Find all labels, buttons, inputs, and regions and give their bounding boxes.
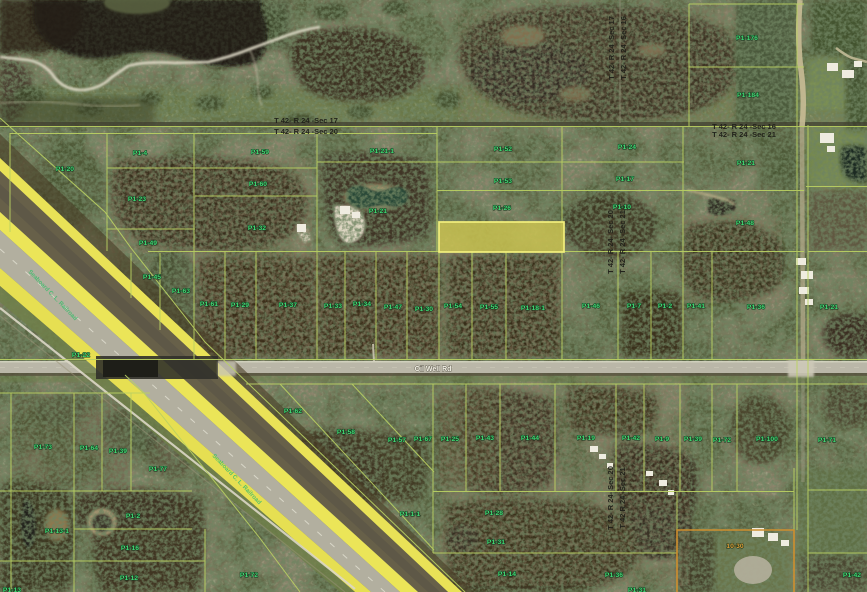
svg-text:P1-33: P1-33 (324, 303, 342, 310)
svg-text:P1-48: P1-48 (736, 220, 754, 227)
svg-text:P1-42: P1-42 (622, 435, 640, 442)
svg-text:P1-7: P1-7 (627, 303, 642, 310)
svg-text:P1-176: P1-176 (736, 35, 758, 42)
svg-text:P1-30: P1-30 (415, 306, 433, 313)
svg-text:T 42- R 24 -Sec 21: T 42- R 24 -Sec 21 (712, 130, 776, 139)
svg-text:P1-58: P1-58 (337, 429, 355, 436)
svg-text:Oil Well Rd: Oil Well Rd (415, 366, 452, 373)
svg-text:P1-44: P1-44 (521, 435, 539, 442)
svg-text:T 42- R 24 -Sec 17: T 42- R 24 -Sec 17 (274, 116, 338, 125)
svg-text:P1-29: P1-29 (231, 302, 249, 309)
svg-text:P1-2: P1-2 (126, 513, 141, 520)
svg-text:P1-24: P1-24 (618, 144, 636, 151)
svg-text:P1-72: P1-72 (713, 437, 731, 444)
svg-text:P1-10: P1-10 (613, 204, 631, 211)
svg-text:P1-18-1: P1-18-1 (521, 305, 545, 312)
svg-text:P1-45: P1-45 (143, 274, 161, 281)
svg-text:P1-63: P1-63 (172, 288, 190, 295)
svg-text:P1-21-1: P1-21-1 (370, 148, 394, 155)
svg-text:P1-43: P1-43 (476, 435, 494, 442)
svg-text:P1-28: P1-28 (485, 510, 503, 517)
svg-text:P1-26: P1-26 (493, 205, 511, 212)
svg-text:P1-21: P1-21 (369, 208, 387, 215)
svg-text:P1-21: P1-21 (737, 160, 755, 167)
svg-text:T 42- R 24- Sec 20: T 42- R 24- Sec 20 (606, 210, 615, 274)
svg-text:P1-57: P1-57 (388, 437, 406, 444)
svg-text:P1-19: P1-19 (577, 435, 595, 442)
svg-text:P1-36: P1-36 (747, 304, 765, 311)
svg-text:P1-14: P1-14 (498, 571, 516, 578)
svg-text:P1-23: P1-23 (128, 196, 146, 203)
svg-text:P1-21: P1-21 (820, 304, 838, 311)
svg-text:P1-39: P1-39 (109, 448, 127, 455)
svg-text:P1-37: P1-37 (279, 302, 297, 309)
svg-text:P1-22: P1-22 (72, 352, 90, 359)
svg-text:P1-67: P1-67 (414, 436, 432, 443)
svg-text:P1-20: P1-20 (56, 166, 74, 173)
svg-text:P1-25: P1-25 (441, 436, 459, 443)
svg-text:P1-54: P1-54 (444, 303, 462, 310)
svg-text:P1-31: P1-31 (628, 587, 646, 592)
svg-text:P1-16: P1-16 (121, 545, 139, 552)
svg-text:T 42 R 24 -Sec 21: T 42 R 24 -Sec 21 (618, 467, 627, 528)
svg-text:P1-72: P1-72 (240, 572, 258, 579)
svg-text:P1-47: P1-47 (384, 304, 402, 311)
svg-text:P1-17: P1-17 (616, 176, 634, 183)
svg-text:P1-13: P1-13 (3, 587, 21, 592)
svg-text:P1-71: P1-71 (818, 437, 836, 444)
svg-text:P1-36: P1-36 (605, 572, 623, 579)
svg-text:P1-34: P1-34 (353, 301, 371, 308)
svg-text:P1-32: P1-32 (248, 225, 266, 232)
svg-text:T 42- R 24 -Sec 17: T 42- R 24 -Sec 17 (607, 16, 616, 80)
svg-text:P1-53: P1-53 (494, 178, 512, 185)
svg-text:P1-55: P1-55 (480, 304, 498, 311)
svg-text:P1-73: P1-73 (34, 444, 52, 451)
svg-text:10-30: 10-30 (726, 543, 744, 550)
svg-text:P1-31: P1-31 (487, 539, 505, 546)
svg-text:P1-59: P1-59 (251, 149, 269, 156)
svg-text:T 42- R 24 -Sec 20: T 42- R 24 -Sec 20 (274, 127, 338, 136)
svg-text:P1-12: P1-12 (120, 575, 138, 582)
svg-text:P1-62: P1-62 (284, 408, 302, 415)
svg-text:P1-4: P1-4 (133, 150, 148, 157)
svg-text:P1-60: P1-60 (249, 181, 267, 188)
svg-text:P1-41: P1-41 (687, 303, 705, 310)
svg-text:P1-77: P1-77 (149, 466, 167, 473)
svg-text:T 42- R 24 -Sec 16: T 42- R 24 -Sec 16 (619, 16, 628, 80)
svg-text:P1-49: P1-49 (139, 240, 157, 247)
svg-text:P1-184: P1-184 (737, 92, 759, 99)
svg-text:P1-42: P1-42 (843, 572, 861, 579)
svg-text:T 42- R 24- Sec 20: T 42- R 24- Sec 20 (606, 466, 615, 530)
svg-text:P1-39: P1-39 (684, 436, 702, 443)
svg-text:P1-46: P1-46 (582, 303, 600, 310)
svg-text:P1-2: P1-2 (658, 303, 673, 310)
svg-text:P1-13-1: P1-13-1 (45, 528, 69, 535)
svg-text:P1-1-1: P1-1-1 (400, 511, 421, 518)
svg-text:P1-9: P1-9 (655, 436, 670, 443)
svg-text:P1-64: P1-64 (80, 445, 98, 452)
svg-text:P1-61: P1-61 (200, 301, 218, 308)
svg-text:P1-52: P1-52 (494, 146, 512, 153)
svg-text:T 42- R 24 -Sec 21: T 42- R 24 -Sec 21 (618, 210, 627, 274)
svg-text:P1-100: P1-100 (756, 436, 778, 443)
